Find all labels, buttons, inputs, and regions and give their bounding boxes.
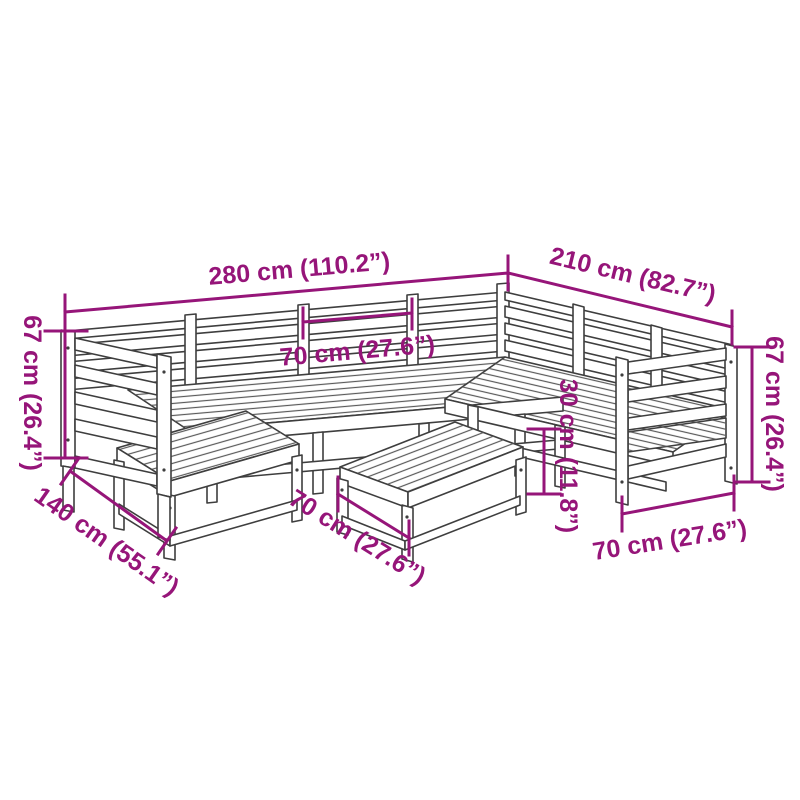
diagram-canvas: 280 cm (110.2”) 210 cm (82.7”) 67 cm (26…	[0, 0, 800, 800]
dimension-label-seat-height: 30 cm (11.8”)	[554, 379, 582, 533]
dimension-label-height-right: 67 cm (26.4”)	[760, 336, 788, 492]
dimension-label-height-left: 67 cm (26.4”)	[18, 315, 46, 471]
furniture-dimension-diagram: 280 cm (110.2”) 210 cm (82.7”) 67 cm (26…	[0, 0, 800, 800]
